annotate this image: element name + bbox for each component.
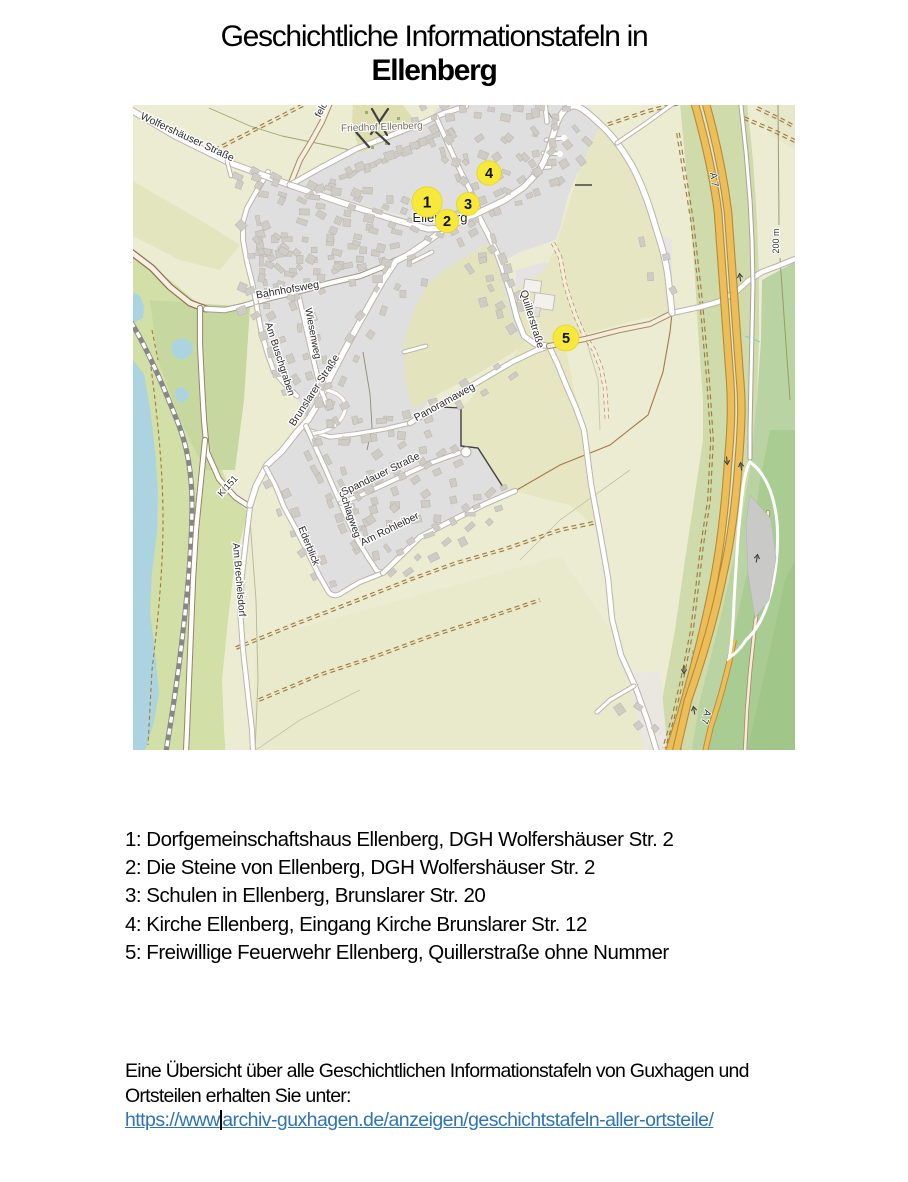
svg-text:2: 2: [443, 214, 451, 230]
svg-text:5: 5: [562, 331, 570, 347]
svg-text:3: 3: [464, 197, 472, 213]
svg-text:A 7: A 7: [707, 172, 720, 188]
svg-text:4: 4: [485, 166, 493, 182]
svg-text:200 m: 200 m: [771, 228, 781, 253]
svg-text:1: 1: [423, 195, 432, 212]
